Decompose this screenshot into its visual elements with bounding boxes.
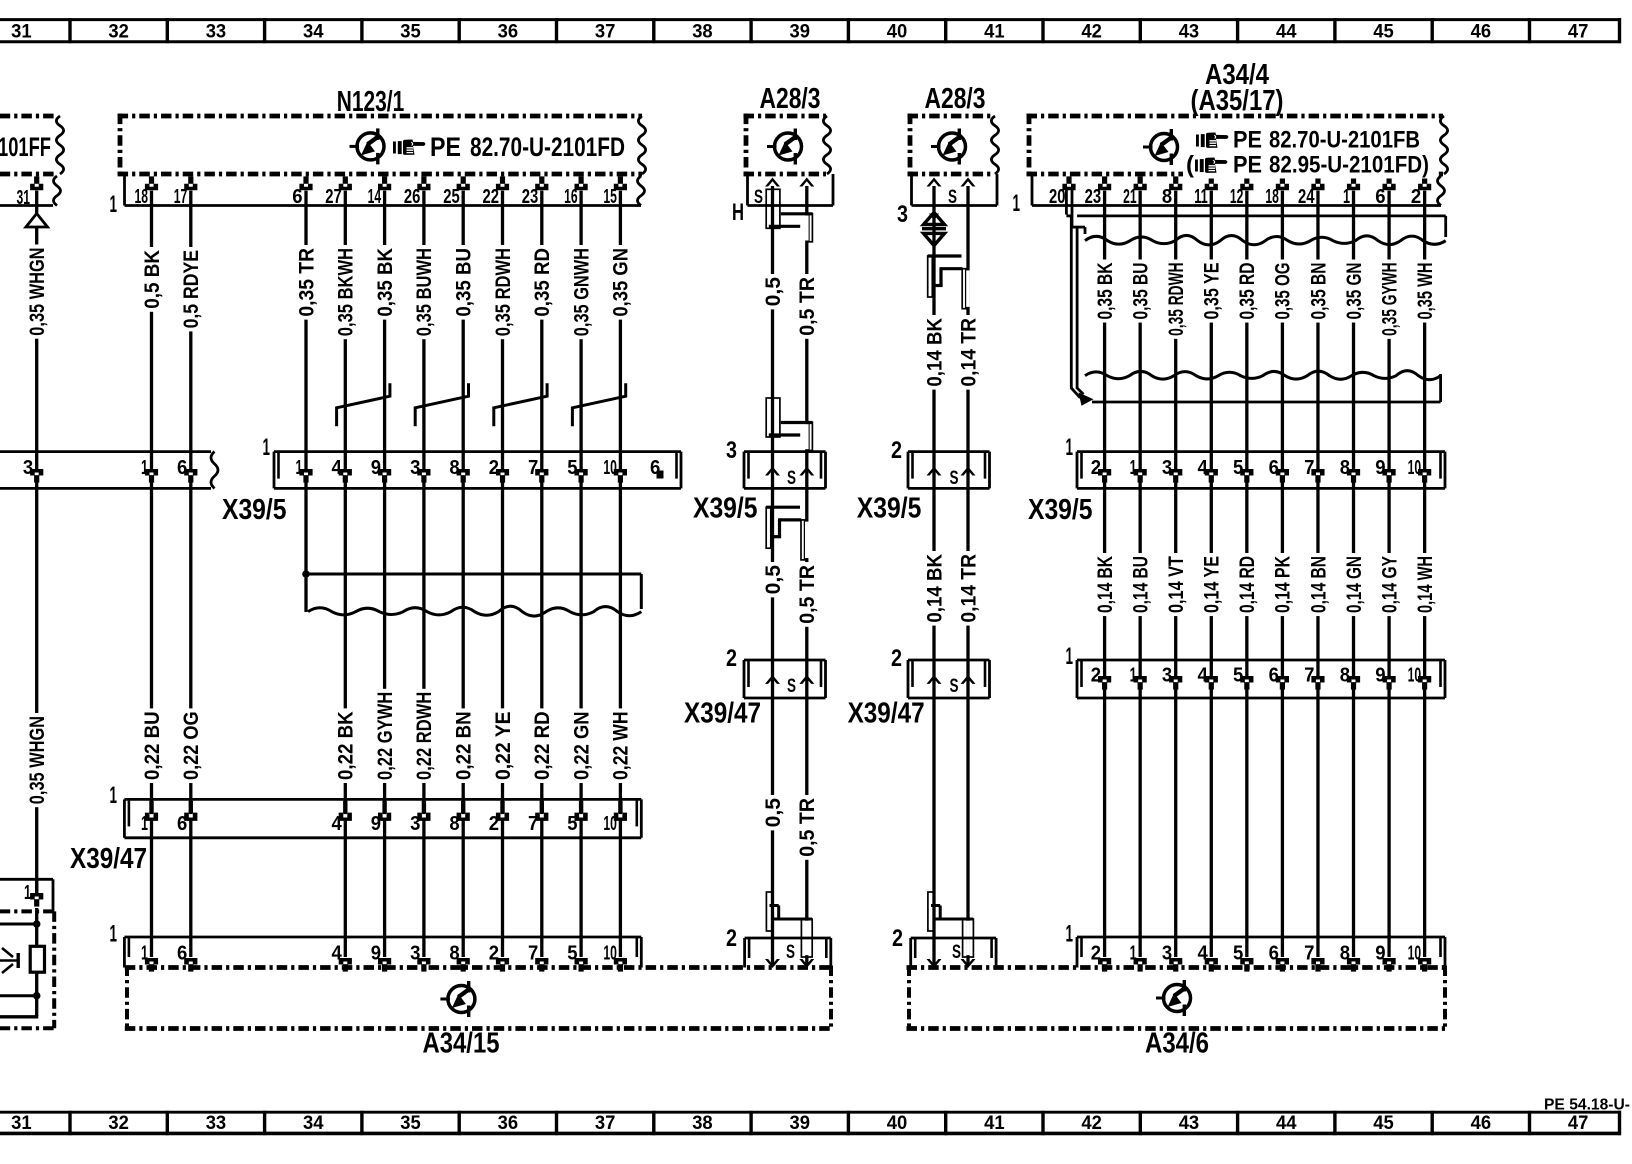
svg-text:0,35 BKWH: 0,35 BKWH bbox=[335, 248, 358, 336]
svg-text:10: 10 bbox=[603, 813, 617, 835]
svg-text:7: 7 bbox=[1304, 665, 1314, 687]
svg-text:X39/5: X39/5 bbox=[857, 493, 922, 525]
svg-text:9: 9 bbox=[1375, 665, 1385, 687]
svg-text:34: 34 bbox=[303, 22, 324, 43]
svg-text:7: 7 bbox=[528, 813, 538, 835]
svg-text:2: 2 bbox=[891, 645, 902, 672]
svg-text:0,35 BUWH: 0,35 BUWH bbox=[413, 248, 436, 336]
svg-text:0,22 OG: 0,22 OG bbox=[180, 711, 203, 780]
svg-text:2: 2 bbox=[726, 925, 737, 952]
svg-text:21: 21 bbox=[1123, 186, 1137, 208]
svg-text:18: 18 bbox=[1265, 186, 1279, 208]
svg-text:35: 35 bbox=[400, 1113, 421, 1134]
svg-text:34: 34 bbox=[303, 1113, 324, 1134]
svg-text:0,5 RDYE: 0,5 RDYE bbox=[180, 250, 203, 328]
svg-text:X39/5: X39/5 bbox=[693, 493, 758, 525]
svg-text:0,14 WH: 0,14 WH bbox=[1414, 556, 1437, 613]
svg-text:1: 1 bbox=[24, 882, 31, 904]
svg-text:A34/15: A34/15 bbox=[423, 1028, 500, 1060]
svg-text:A34/6: A34/6 bbox=[1145, 1028, 1209, 1060]
svg-text:1: 1 bbox=[1343, 186, 1350, 208]
svg-text:1: 1 bbox=[263, 434, 271, 461]
svg-text:0,35 RDWH: 0,35 RDWH bbox=[1165, 263, 1188, 336]
svg-text:1: 1 bbox=[1066, 643, 1074, 670]
svg-text:10: 10 bbox=[1408, 457, 1422, 479]
svg-text:43: 43 bbox=[1179, 22, 1200, 43]
svg-text:45: 45 bbox=[1373, 22, 1394, 43]
svg-text:PE: PE bbox=[430, 132, 461, 162]
svg-text:4: 4 bbox=[1197, 665, 1208, 687]
svg-text:26: 26 bbox=[404, 186, 421, 208]
svg-text:2: 2 bbox=[489, 943, 499, 965]
svg-text:0,22 BN: 0,22 BN bbox=[453, 711, 476, 780]
svg-text:46: 46 bbox=[1471, 22, 1492, 43]
svg-text:23: 23 bbox=[1085, 186, 1102, 208]
svg-text:0,35 GN: 0,35 GN bbox=[610, 248, 633, 317]
svg-text:8: 8 bbox=[449, 457, 459, 479]
svg-text:17: 17 bbox=[174, 186, 188, 208]
svg-text:14: 14 bbox=[368, 186, 382, 208]
svg-text:0,14 TR: 0,14 TR bbox=[957, 554, 980, 623]
svg-text:0,35 OG: 0,35 OG bbox=[1272, 263, 1295, 320]
svg-text:38: 38 bbox=[692, 22, 713, 43]
svg-text:43: 43 bbox=[1179, 1113, 1200, 1134]
svg-text:46: 46 bbox=[1471, 1113, 1492, 1134]
svg-text:0,22 GYWH: 0,22 GYWH bbox=[374, 692, 397, 780]
svg-text:38: 38 bbox=[692, 1113, 713, 1134]
svg-text:1: 1 bbox=[141, 943, 148, 965]
svg-text:40: 40 bbox=[887, 1113, 908, 1134]
svg-text:0,5 TR: 0,5 TR bbox=[796, 565, 819, 624]
svg-text:0,5: 0,5 bbox=[762, 798, 785, 828]
svg-text:4: 4 bbox=[332, 813, 343, 835]
svg-text:N123/1: N123/1 bbox=[337, 86, 405, 118]
svg-text:9: 9 bbox=[1375, 457, 1385, 479]
svg-text:82.70-U-2101FB: 82.70-U-2101FB bbox=[1269, 127, 1420, 154]
svg-text:X39/47: X39/47 bbox=[848, 698, 925, 730]
svg-text:1: 1 bbox=[296, 457, 303, 479]
svg-text:0,35 GN: 0,35 GN bbox=[1343, 263, 1366, 320]
svg-text:0,35 BU: 0,35 BU bbox=[1129, 263, 1152, 320]
svg-text:0,22 RDWH: 0,22 RDWH bbox=[413, 692, 436, 780]
svg-text:H: H bbox=[732, 199, 744, 226]
svg-text:0,22 WH: 0,22 WH bbox=[610, 711, 633, 780]
svg-text:0,35 GNWH: 0,35 GNWH bbox=[570, 248, 593, 336]
svg-text:27: 27 bbox=[325, 186, 342, 208]
svg-text:1: 1 bbox=[1130, 665, 1137, 687]
svg-text:S: S bbox=[787, 467, 796, 489]
svg-text:40: 40 bbox=[887, 22, 908, 43]
svg-text:0,35 RD: 0,35 RD bbox=[531, 248, 554, 317]
svg-text:15: 15 bbox=[603, 186, 617, 208]
svg-text:0,14 GY: 0,14 GY bbox=[1378, 556, 1401, 613]
svg-text:S: S bbox=[754, 186, 763, 208]
svg-text:5: 5 bbox=[567, 457, 577, 479]
svg-text:2: 2 bbox=[489, 457, 499, 479]
svg-text:0,22 GN: 0,22 GN bbox=[570, 711, 593, 780]
svg-text:10: 10 bbox=[603, 943, 617, 965]
svg-text:37: 37 bbox=[595, 22, 616, 43]
svg-text:S: S bbox=[787, 675, 796, 697]
svg-text:31: 31 bbox=[11, 22, 32, 43]
svg-text:9: 9 bbox=[371, 457, 381, 479]
svg-text:8: 8 bbox=[1340, 943, 1350, 965]
svg-text:22: 22 bbox=[483, 186, 500, 208]
svg-text:23: 23 bbox=[522, 186, 539, 208]
svg-text:0,14 BK: 0,14 BK bbox=[923, 318, 946, 387]
svg-text:0,22 RD: 0,22 RD bbox=[531, 711, 554, 780]
svg-text:6: 6 bbox=[1269, 943, 1279, 965]
svg-text:42: 42 bbox=[1081, 22, 1102, 43]
svg-text:31: 31 bbox=[11, 1113, 32, 1134]
svg-text:2: 2 bbox=[1091, 943, 1101, 965]
svg-text:3: 3 bbox=[410, 457, 420, 479]
svg-text:S: S bbox=[950, 675, 959, 697]
svg-text:35: 35 bbox=[400, 22, 421, 43]
svg-text:11: 11 bbox=[1194, 186, 1208, 208]
svg-text:S: S bbox=[786, 941, 795, 963]
svg-text:3: 3 bbox=[897, 201, 908, 228]
svg-text:18: 18 bbox=[135, 186, 149, 208]
svg-text:5: 5 bbox=[1233, 457, 1243, 479]
svg-text:6: 6 bbox=[1269, 665, 1279, 687]
svg-text:1: 1 bbox=[141, 813, 148, 835]
svg-text:0,14 BK: 0,14 BK bbox=[923, 554, 946, 623]
svg-text:7: 7 bbox=[528, 943, 538, 965]
svg-text:0,14 BK: 0,14 BK bbox=[1094, 556, 1117, 613]
svg-text:0,35 RDWH: 0,35 RDWH bbox=[492, 248, 515, 336]
svg-text:8: 8 bbox=[449, 943, 459, 965]
svg-text:S: S bbox=[952, 941, 961, 963]
svg-text:39: 39 bbox=[790, 22, 811, 43]
svg-text:0,14 VT: 0,14 VT bbox=[1165, 556, 1188, 613]
svg-text:PE: PE bbox=[1233, 152, 1262, 179]
svg-text:2: 2 bbox=[1411, 186, 1421, 208]
svg-text:A28/3: A28/3 bbox=[760, 83, 821, 115]
svg-text:(: ( bbox=[1186, 152, 1194, 179]
svg-text:3: 3 bbox=[23, 457, 33, 479]
svg-text:3: 3 bbox=[1162, 457, 1172, 479]
svg-text:2: 2 bbox=[1091, 665, 1101, 687]
svg-text:5: 5 bbox=[567, 943, 577, 965]
svg-text:24: 24 bbox=[1298, 186, 1315, 208]
svg-text:44: 44 bbox=[1276, 1113, 1297, 1134]
svg-text:0,35 BU: 0,35 BU bbox=[453, 248, 476, 317]
svg-text:4: 4 bbox=[1197, 457, 1208, 479]
svg-text:10: 10 bbox=[603, 457, 617, 479]
svg-text:5: 5 bbox=[1233, 943, 1243, 965]
svg-text:6: 6 bbox=[177, 813, 187, 835]
svg-text:10: 10 bbox=[1408, 665, 1422, 687]
svg-text:25: 25 bbox=[443, 186, 460, 208]
svg-text:0,35 WHGN: 0,35 WHGN bbox=[26, 716, 49, 804]
svg-text:82.70-U-2101FD: 82.70-U-2101FD bbox=[470, 132, 625, 162]
svg-text:41: 41 bbox=[984, 1113, 1005, 1134]
svg-text:0,35 WHGN: 0,35 WHGN bbox=[26, 248, 49, 336]
svg-text:47: 47 bbox=[1568, 22, 1589, 43]
svg-text:1: 1 bbox=[1066, 921, 1074, 948]
svg-text:3: 3 bbox=[1162, 665, 1172, 687]
svg-text:0,14 BN: 0,14 BN bbox=[1307, 556, 1330, 613]
svg-text:0,35 BK: 0,35 BK bbox=[1094, 263, 1117, 320]
svg-text:0,35 BK: 0,35 BK bbox=[374, 248, 397, 317]
svg-text:6: 6 bbox=[1375, 186, 1385, 208]
svg-text:2: 2 bbox=[1091, 457, 1101, 479]
svg-text:0,22 YE: 0,22 YE bbox=[492, 711, 515, 780]
svg-text:0,14 RD: 0,14 RD bbox=[1236, 556, 1259, 613]
svg-text:6: 6 bbox=[1269, 457, 1279, 479]
svg-text:0,5 TR: 0,5 TR bbox=[796, 798, 819, 857]
svg-text:10: 10 bbox=[1408, 943, 1422, 965]
svg-text:101FF: 101FF bbox=[0, 132, 51, 162]
svg-text:PE: PE bbox=[1233, 127, 1262, 154]
svg-text:82.95-U-2101FD): 82.95-U-2101FD) bbox=[1269, 152, 1429, 179]
svg-text:0,35 YE: 0,35 YE bbox=[1201, 263, 1224, 320]
svg-text:6: 6 bbox=[177, 943, 187, 965]
svg-text:0,5 BK: 0,5 BK bbox=[141, 250, 164, 309]
svg-text:0,5: 0,5 bbox=[762, 565, 785, 595]
svg-text:45: 45 bbox=[1373, 1113, 1394, 1134]
svg-text:3: 3 bbox=[1162, 943, 1172, 965]
svg-text:31: 31 bbox=[17, 187, 31, 209]
svg-text:1: 1 bbox=[1066, 434, 1074, 461]
svg-text:7: 7 bbox=[528, 457, 538, 479]
svg-text:0,14 TR: 0,14 TR bbox=[957, 318, 980, 387]
svg-text:16: 16 bbox=[564, 186, 578, 208]
svg-text:47: 47 bbox=[1568, 1113, 1589, 1134]
svg-text:1: 1 bbox=[1013, 190, 1021, 217]
svg-text:32: 32 bbox=[108, 1113, 129, 1134]
svg-text:5: 5 bbox=[1233, 665, 1243, 687]
svg-text:36: 36 bbox=[498, 22, 519, 43]
svg-text:4: 4 bbox=[1197, 943, 1208, 965]
svg-text:0,22 BU: 0,22 BU bbox=[141, 711, 164, 780]
svg-text:9: 9 bbox=[371, 943, 381, 965]
svg-text:1: 1 bbox=[110, 921, 118, 948]
svg-text:12: 12 bbox=[1230, 186, 1244, 208]
svg-text:3: 3 bbox=[726, 437, 737, 464]
svg-text:8: 8 bbox=[1340, 457, 1350, 479]
svg-text:X39/5: X39/5 bbox=[222, 494, 287, 526]
svg-text:44: 44 bbox=[1276, 22, 1297, 43]
svg-text:6: 6 bbox=[292, 186, 302, 208]
svg-text:32: 32 bbox=[108, 22, 129, 43]
svg-text:PE 54.18-U-: PE 54.18-U- bbox=[1544, 1097, 1630, 1114]
svg-text:2: 2 bbox=[891, 437, 902, 464]
svg-text:4: 4 bbox=[332, 457, 343, 479]
svg-text:2: 2 bbox=[726, 645, 737, 672]
svg-text:3: 3 bbox=[410, 943, 420, 965]
svg-text:41: 41 bbox=[984, 22, 1005, 43]
svg-text:4: 4 bbox=[332, 943, 343, 965]
svg-text:1: 1 bbox=[1130, 943, 1137, 965]
svg-text:1: 1 bbox=[110, 191, 118, 218]
svg-text:X39/5: X39/5 bbox=[1028, 494, 1093, 526]
svg-text:2: 2 bbox=[892, 925, 903, 952]
svg-text:37: 37 bbox=[595, 1113, 616, 1134]
svg-text:0,35 RD: 0,35 RD bbox=[1236, 263, 1259, 320]
svg-text:1: 1 bbox=[1130, 457, 1137, 479]
svg-text:0,14 BU: 0,14 BU bbox=[1129, 556, 1152, 613]
svg-text:3: 3 bbox=[410, 813, 420, 835]
svg-text:0,5 TR: 0,5 TR bbox=[796, 277, 819, 336]
svg-text:X39/47: X39/47 bbox=[70, 843, 147, 875]
svg-text:0,14 PK: 0,14 PK bbox=[1272, 556, 1295, 613]
svg-text:0,35 WH: 0,35 WH bbox=[1414, 263, 1437, 320]
svg-text:X39/47: X39/47 bbox=[684, 698, 761, 730]
svg-text:20: 20 bbox=[1049, 186, 1066, 208]
svg-text:0,35 BN: 0,35 BN bbox=[1307, 263, 1330, 320]
svg-text:2: 2 bbox=[489, 813, 499, 835]
svg-text:A28/3: A28/3 bbox=[925, 83, 986, 115]
svg-text:0,14 GN: 0,14 GN bbox=[1343, 556, 1366, 613]
svg-text:8: 8 bbox=[449, 813, 459, 835]
svg-text:9: 9 bbox=[1375, 943, 1385, 965]
svg-text:39: 39 bbox=[790, 1113, 811, 1134]
svg-text:36: 36 bbox=[498, 1113, 519, 1134]
svg-text:1: 1 bbox=[141, 457, 148, 479]
svg-text:42: 42 bbox=[1081, 1113, 1102, 1134]
svg-text:6: 6 bbox=[177, 457, 187, 479]
svg-text:5: 5 bbox=[567, 813, 577, 835]
svg-text:8: 8 bbox=[1162, 186, 1172, 208]
svg-text:(A35/17): (A35/17) bbox=[1191, 85, 1284, 117]
svg-text:S: S bbox=[948, 186, 957, 208]
svg-text:S: S bbox=[950, 467, 959, 489]
svg-text:0,22 BK: 0,22 BK bbox=[335, 711, 358, 780]
svg-text:9: 9 bbox=[371, 813, 381, 835]
svg-text:0,14 YE: 0,14 YE bbox=[1201, 556, 1224, 613]
svg-text:0,35 TR: 0,35 TR bbox=[295, 248, 318, 317]
svg-text:1: 1 bbox=[110, 782, 118, 809]
svg-text:0,5: 0,5 bbox=[762, 277, 785, 307]
svg-text:33: 33 bbox=[206, 1113, 227, 1134]
svg-text:7: 7 bbox=[1304, 943, 1314, 965]
svg-text:8: 8 bbox=[1340, 665, 1350, 687]
svg-text:7: 7 bbox=[1304, 457, 1314, 479]
svg-text:33: 33 bbox=[206, 22, 227, 43]
svg-text:0,35 GYWH: 0,35 GYWH bbox=[1378, 263, 1401, 336]
